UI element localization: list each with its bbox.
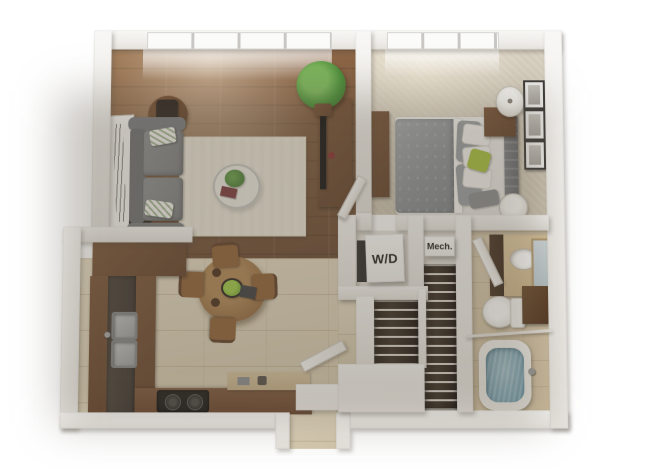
floor-plan-render: W/D Mech.	[0, 0, 650, 468]
bedroom-window-frame	[387, 32, 499, 49]
living-window-frame	[147, 32, 332, 49]
ground-shadow	[58, 92, 544, 424]
